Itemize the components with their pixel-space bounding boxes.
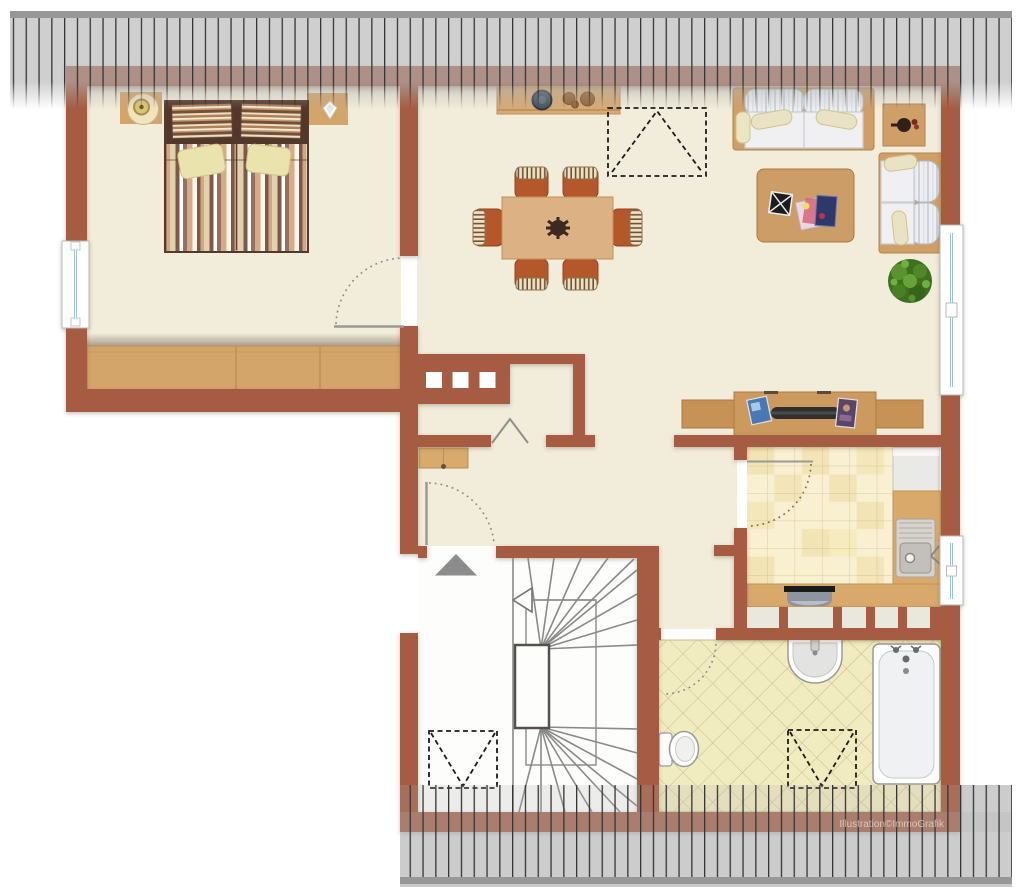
svg-text:Illustration©ImmoGrafik: Illustration©ImmoGrafik bbox=[839, 819, 945, 830]
